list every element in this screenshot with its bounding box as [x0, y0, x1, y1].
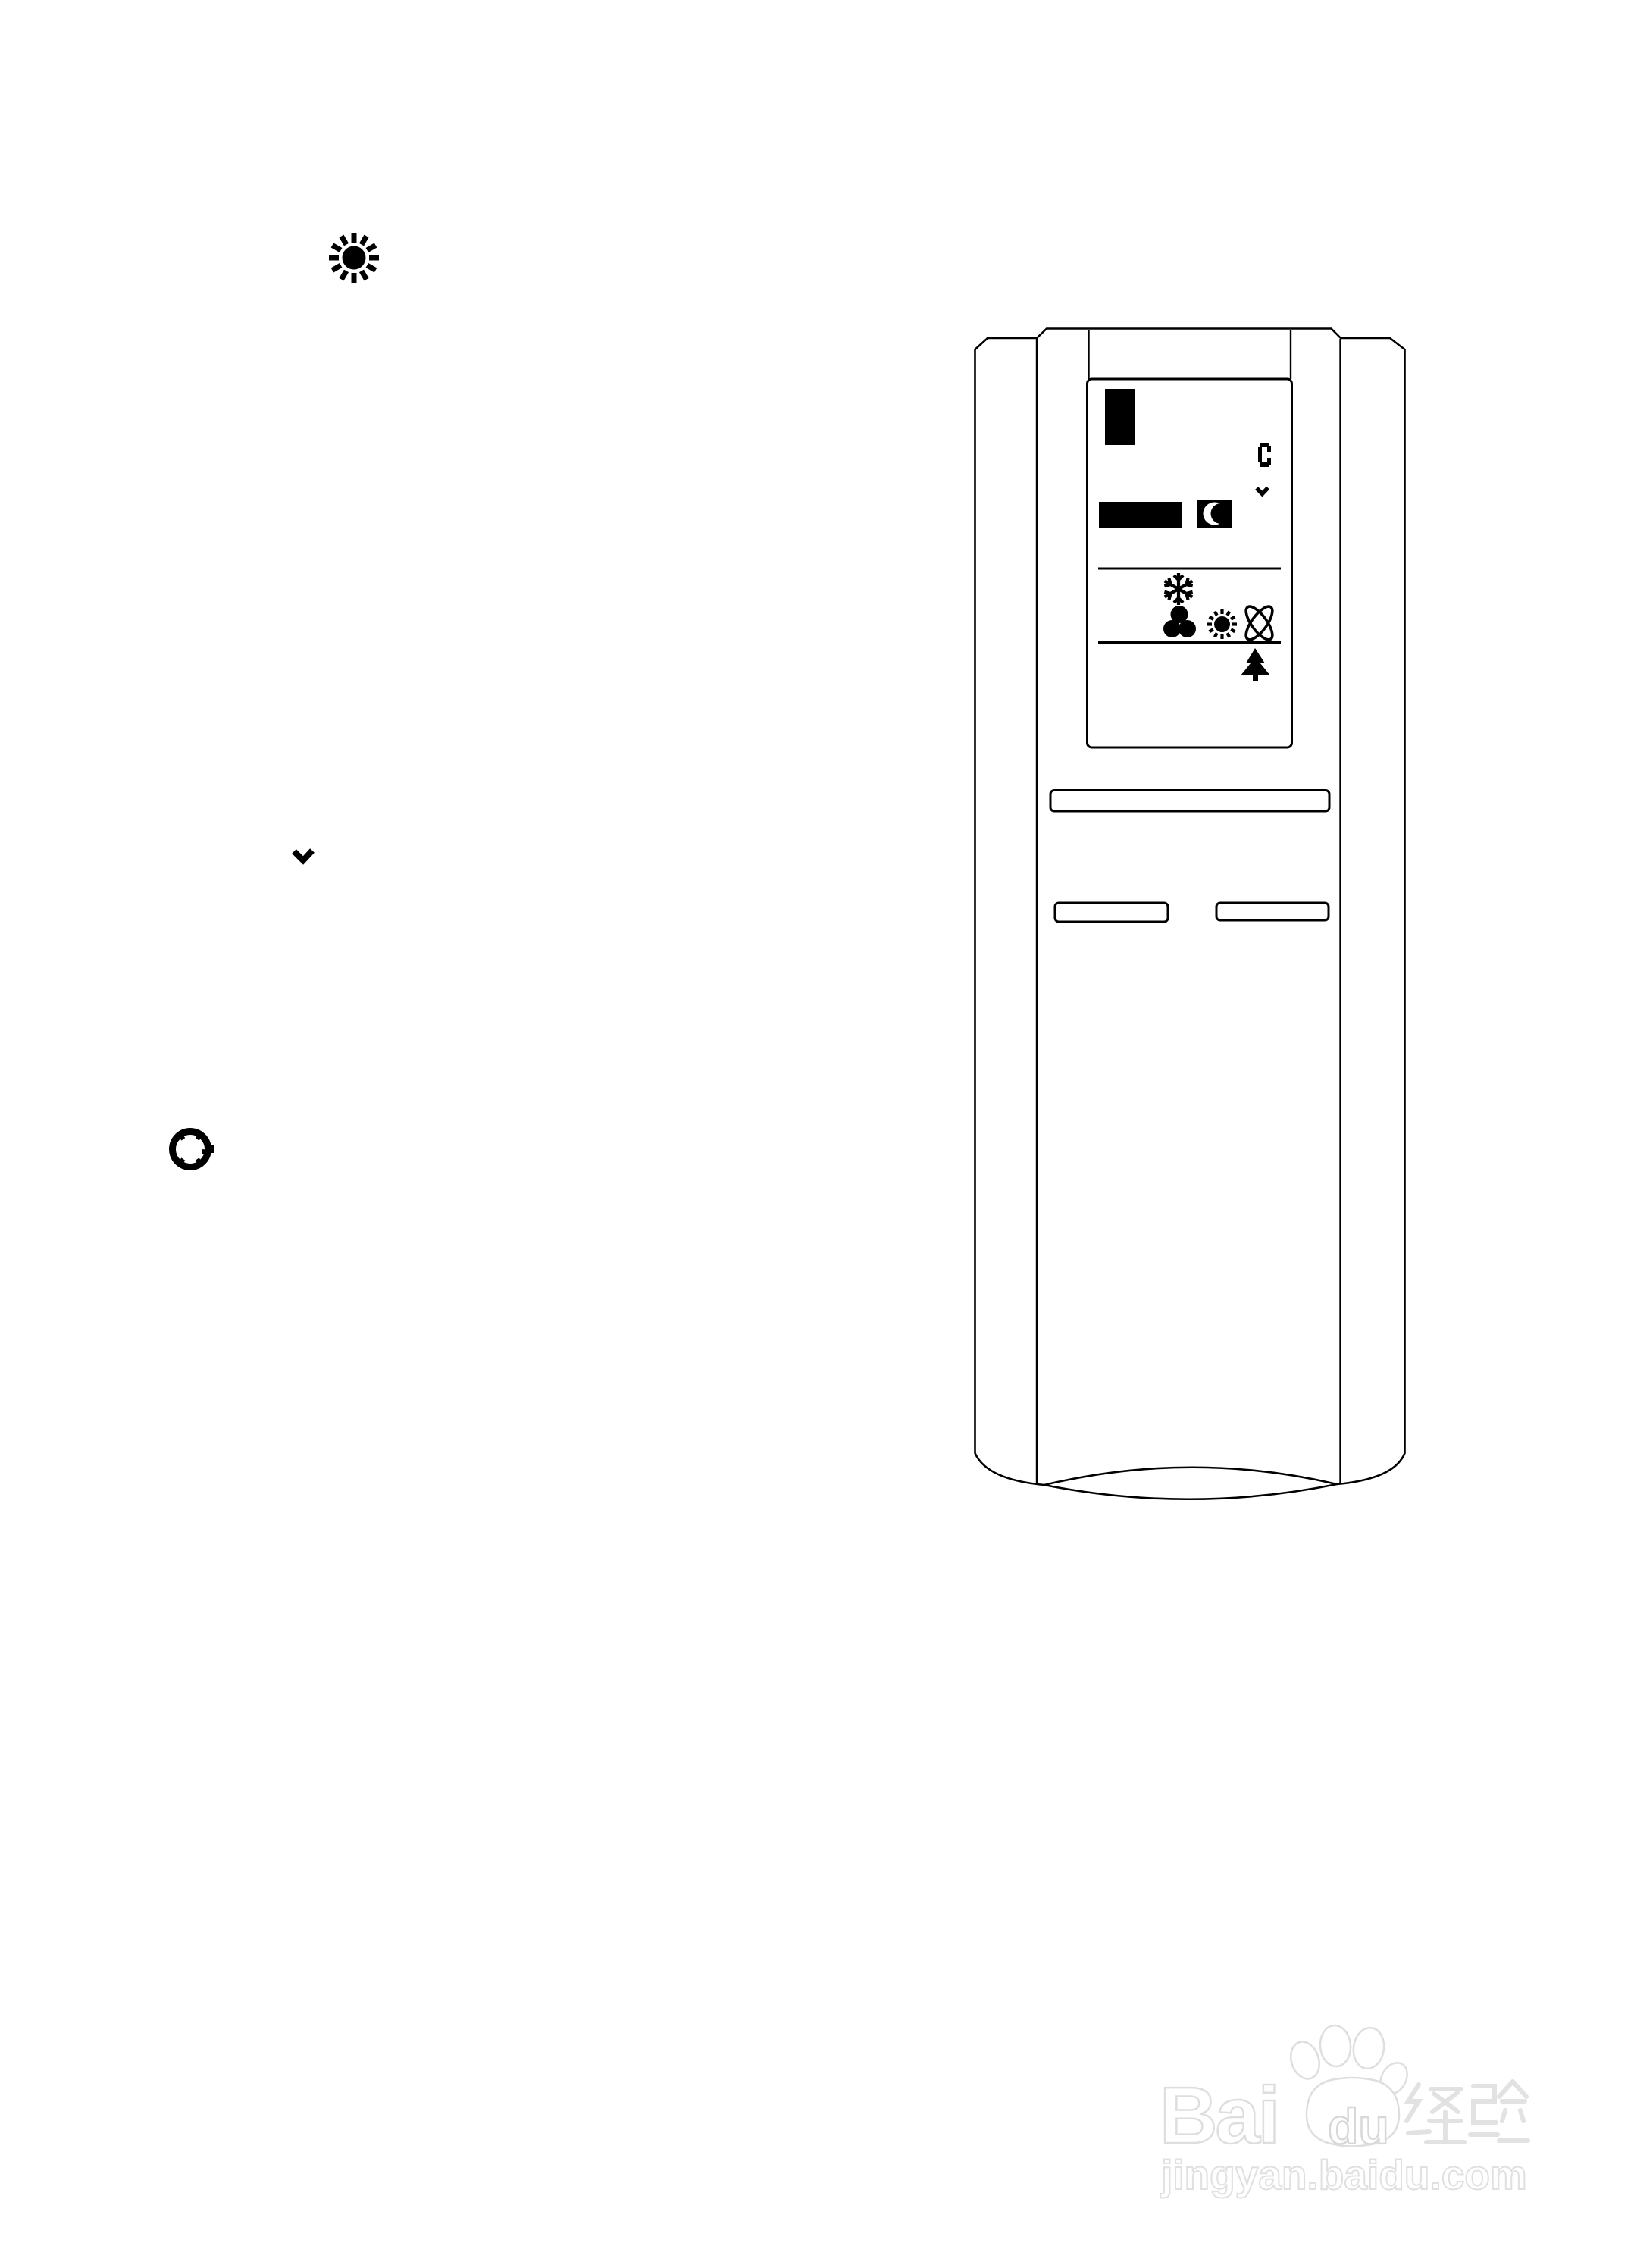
- svg-text:Bai: Bai: [1160, 2071, 1278, 2160]
- svg-text:du: du: [1328, 2098, 1389, 2154]
- svg-text:jingyan.baidu.com: jingyan.baidu.com: [1160, 2151, 1527, 2198]
